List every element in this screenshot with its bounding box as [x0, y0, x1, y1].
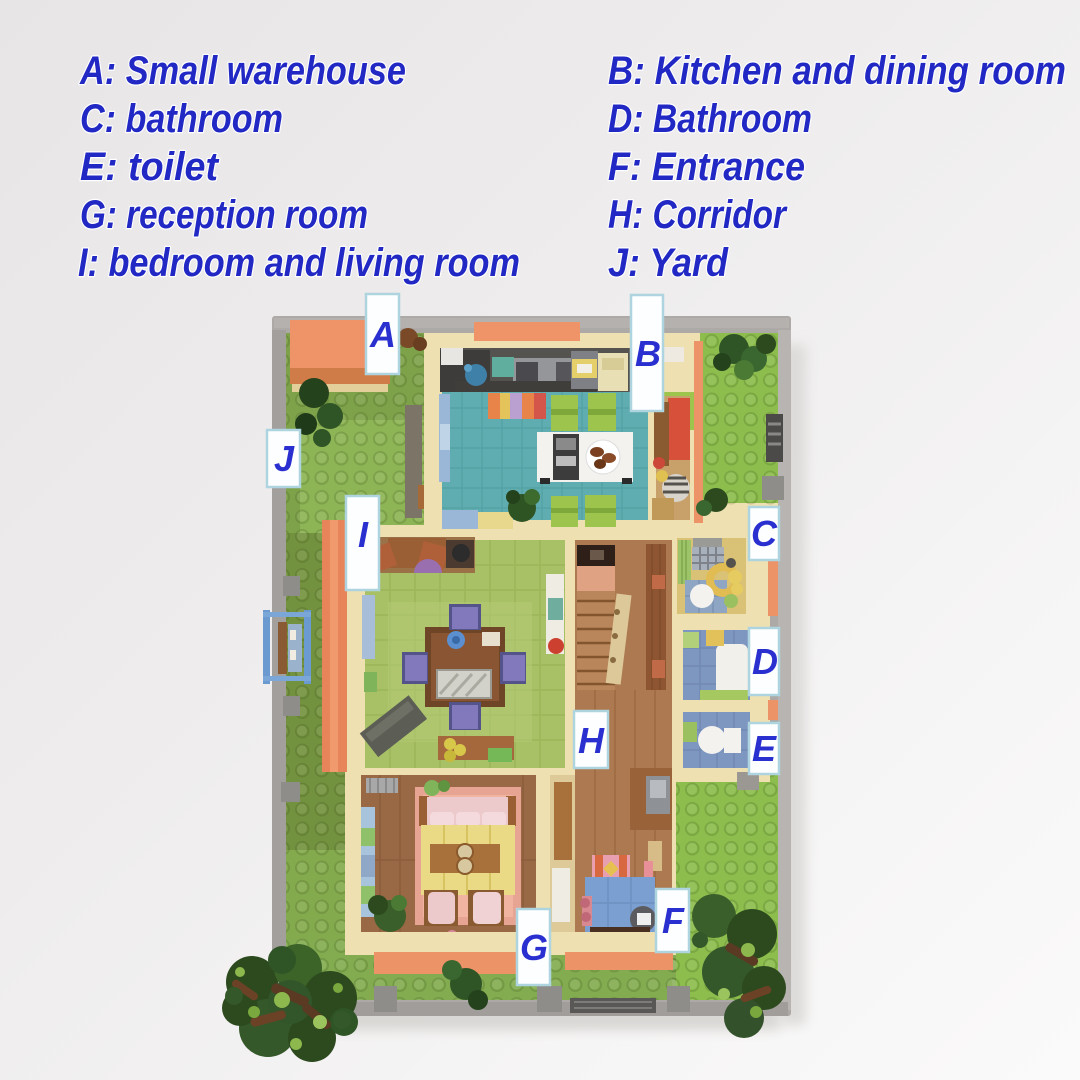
svg-text:J: J — [274, 438, 295, 479]
svg-text:J: Yard: J: Yard — [608, 241, 729, 285]
svg-text:I: bedroom and living room: I: bedroom and living room — [78, 241, 520, 285]
svg-text:G: reception room: G: reception room — [80, 193, 368, 237]
svg-text:H: H — [578, 720, 605, 761]
svg-text:D: Bathroom: D: Bathroom — [608, 97, 812, 141]
svg-text:E: toilet: E: toilet — [80, 145, 220, 189]
svg-text:B: B — [635, 333, 661, 374]
svg-text:F: Entrance: F: Entrance — [608, 145, 805, 189]
svg-text:F: F — [662, 900, 685, 941]
svg-text:E: E — [752, 728, 777, 769]
svg-text:A: A — [369, 314, 396, 355]
svg-text:H: Corridor: H: Corridor — [608, 193, 788, 237]
svg-text:G: G — [520, 927, 548, 968]
svg-text:A: Small warehouse: A: Small warehouse — [79, 49, 406, 93]
svg-text:D: D — [752, 641, 778, 682]
svg-text:B: Kitchen and dining room: B: Kitchen and dining room — [608, 49, 1066, 93]
svg-text:I: I — [358, 514, 369, 555]
svg-text:C: bathroom: C: bathroom — [80, 97, 283, 141]
svg-text:C: C — [751, 513, 778, 554]
